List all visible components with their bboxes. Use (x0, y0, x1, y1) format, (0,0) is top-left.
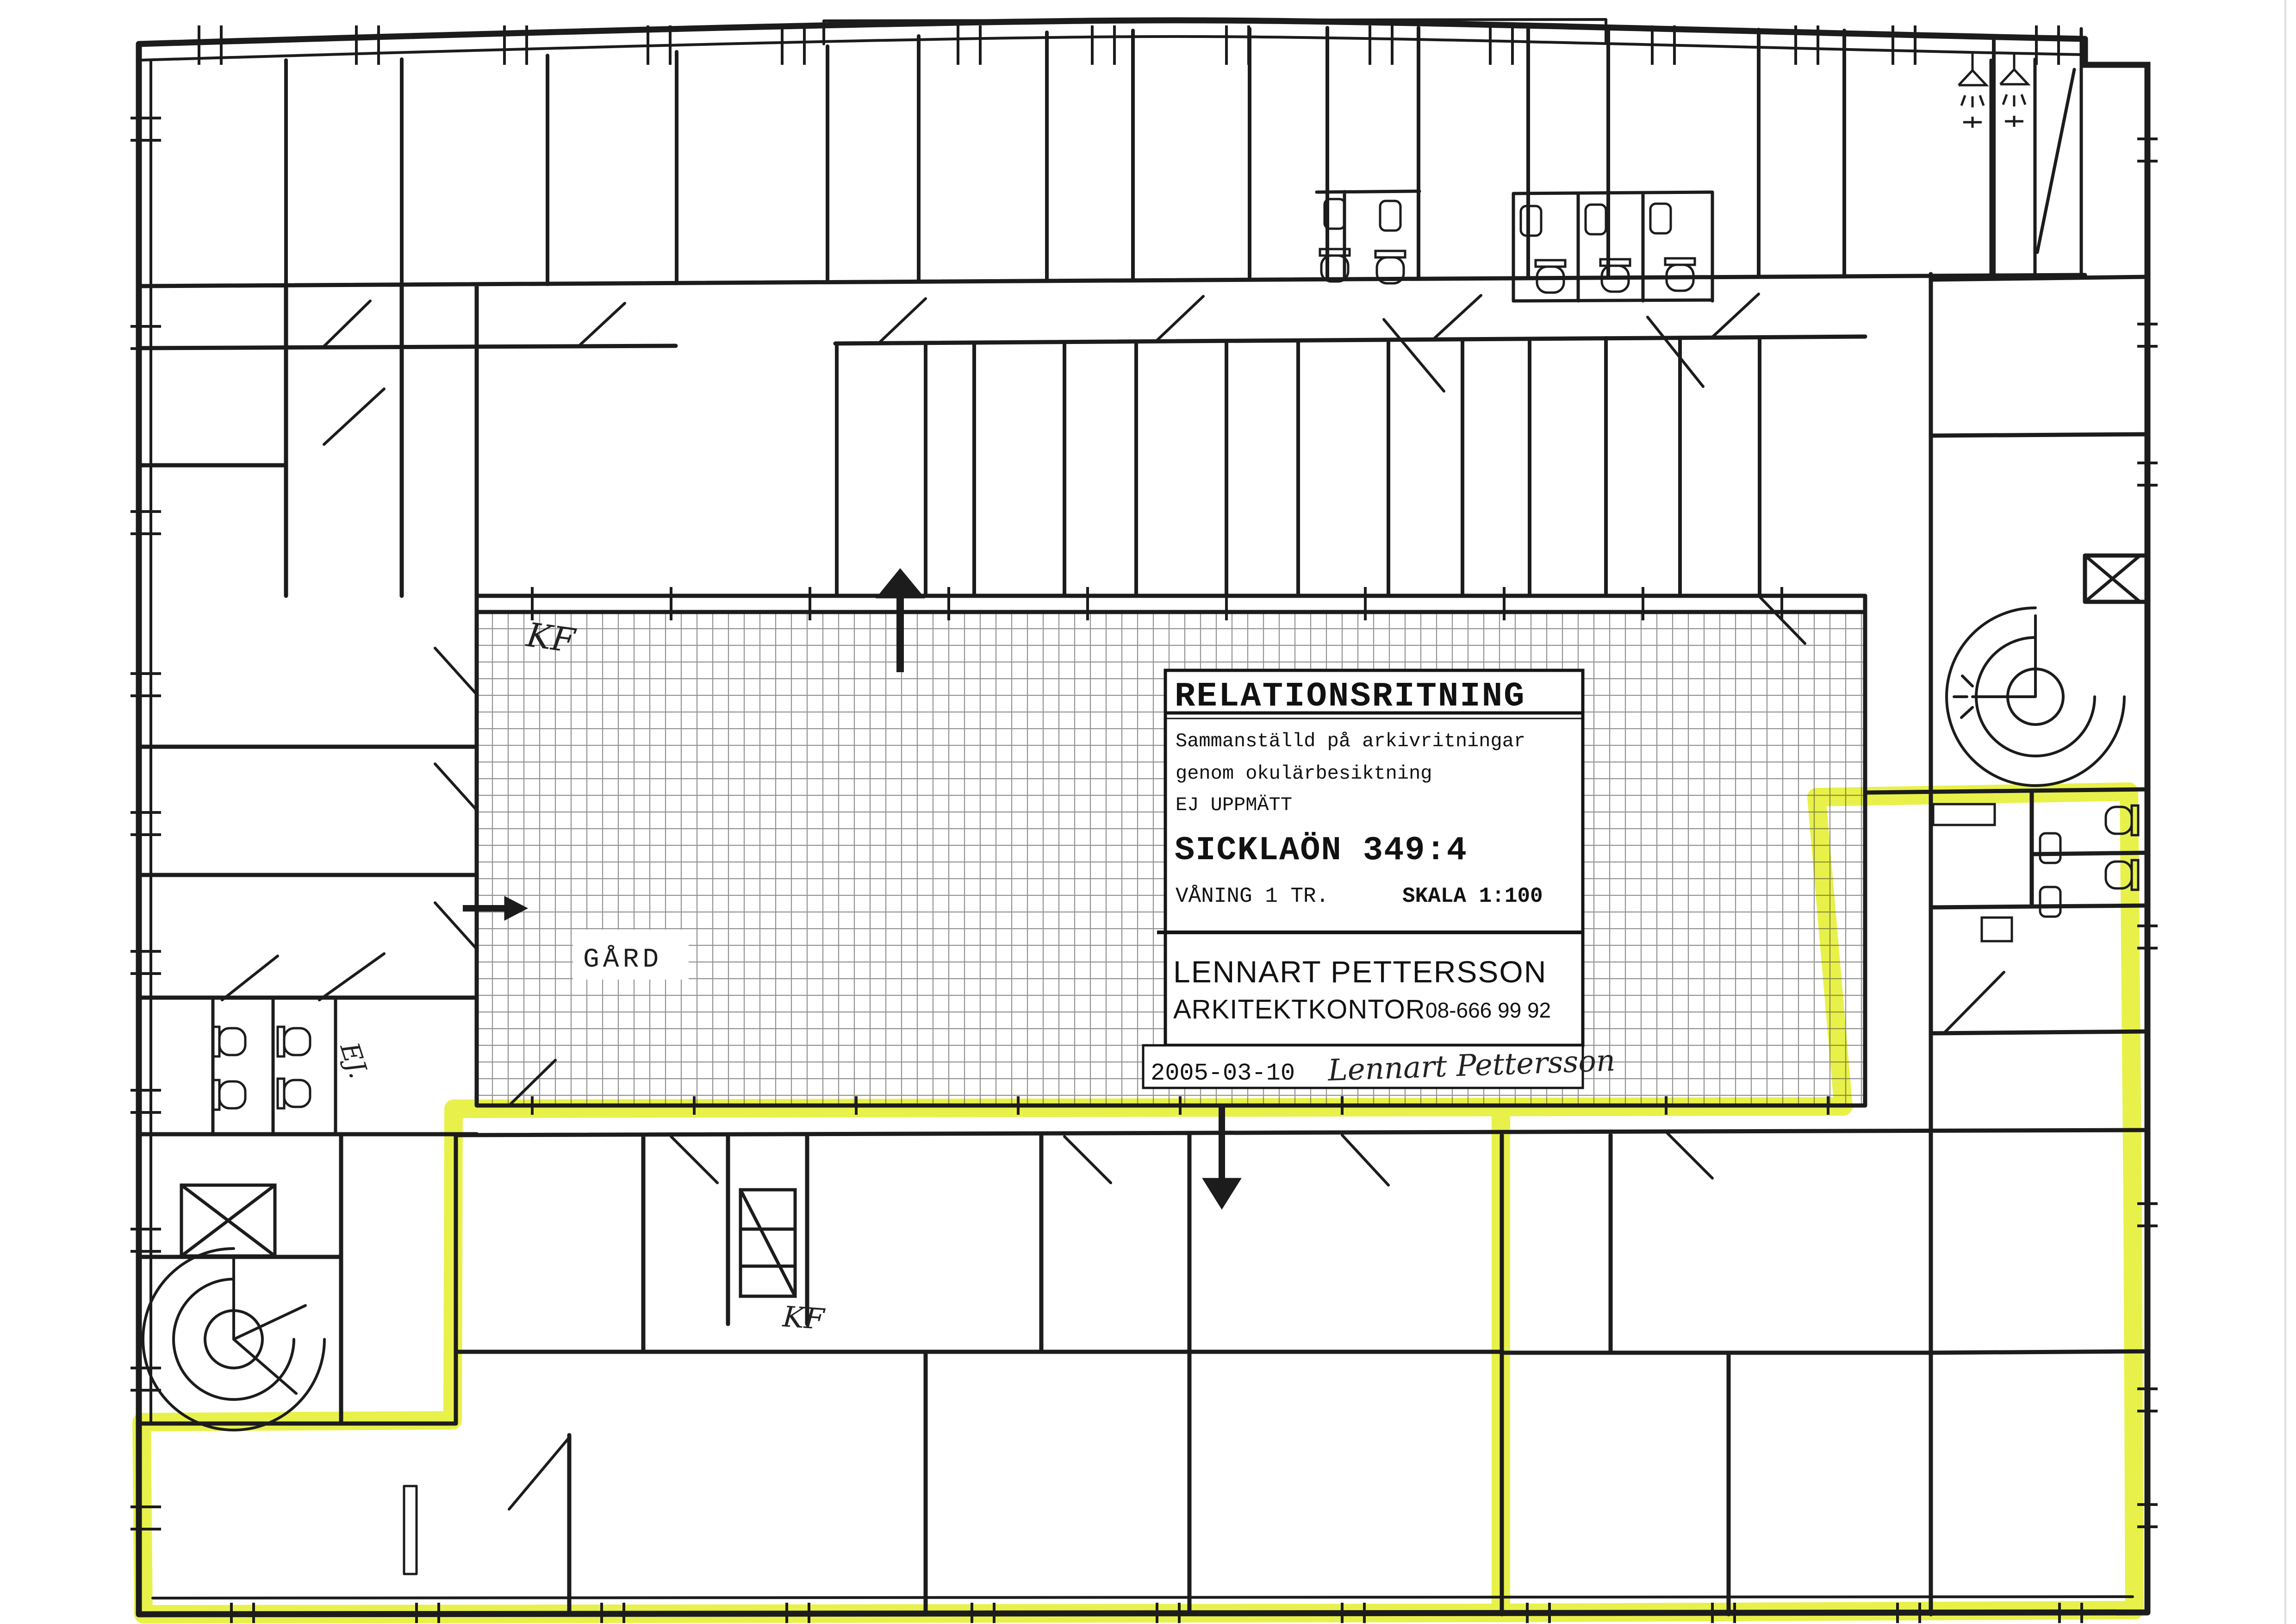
sink-icon (2040, 833, 2060, 863)
sink-icon (2040, 887, 2060, 917)
shower-icon (2000, 52, 2028, 127)
top-row-partitions (286, 27, 1994, 285)
shower-icon (1959, 53, 1986, 128)
scale-label: SKALA 1:100 (1402, 884, 1543, 908)
courtyard-label-group: GÅRD (573, 930, 689, 980)
toilet-icon (213, 1080, 245, 1110)
kf-annotation-lower: KF (781, 1299, 826, 1336)
note-line-2: genom okulärbesiktning (1176, 762, 1432, 785)
courtyard-label: GÅRD (583, 945, 662, 975)
kf-annotation-upper: KF (523, 615, 579, 660)
window-ticks (131, 25, 2158, 1623)
entrance-arrow-icon (463, 896, 528, 920)
toilet-icon (278, 1079, 310, 1108)
sink-icon (1650, 204, 1671, 233)
property-designation: SICKLAÖN 349:4 (1175, 831, 1468, 869)
ej-annotation: EJ. (334, 1038, 373, 1082)
outer-wall-inner-line (139, 19, 2133, 1598)
top-right-block-walls (1991, 29, 2081, 274)
title-block: RELATIONSRITNING Sammanställd på arkivri… (1143, 670, 1616, 1088)
duct-shaft (740, 1190, 795, 1296)
toilet-icon (1600, 259, 1630, 292)
floor-label: VÅNING 1 TR. (1176, 884, 1329, 908)
floor-plan-drawing: GÅRD KF KF EJ. RELATIONSRITNING Sammanst… (0, 0, 2296, 1624)
door-swing-icon (222, 294, 2004, 1509)
spiral-stair-icon (1947, 608, 2124, 786)
sink-icon (1380, 201, 1400, 231)
architect-phone: 08-666 99 92 (1425, 998, 1551, 1022)
sink-icon (1521, 206, 1541, 236)
note-line-1: Sammanställd på arkivritningar (1176, 730, 1525, 752)
second-row-partitions (837, 337, 1760, 596)
toilet-icon (278, 1027, 310, 1056)
architect-firm-name: LENNART PETTERSSON (1173, 955, 1547, 989)
architect-firm-type: ARKITEKTKONTOR (1173, 994, 1425, 1024)
note-line-3: EJ UPPMÄTT (1176, 794, 1292, 816)
drawing-date: 2005-03-10 (1151, 1060, 1295, 1087)
spiral-stair-icon (143, 1249, 324, 1430)
toilet-icon (1665, 258, 1695, 291)
sink-icon (1586, 205, 1606, 234)
entrance-arrow-icon (1202, 1107, 1241, 1209)
floor-plan-sheet: GÅRD KF KF EJ. RELATIONSRITNING Sammanst… (0, 0, 2296, 1624)
toilet-icon (213, 1027, 245, 1056)
drawing-type-heading: RELATIONSRITNING (1175, 677, 1526, 716)
